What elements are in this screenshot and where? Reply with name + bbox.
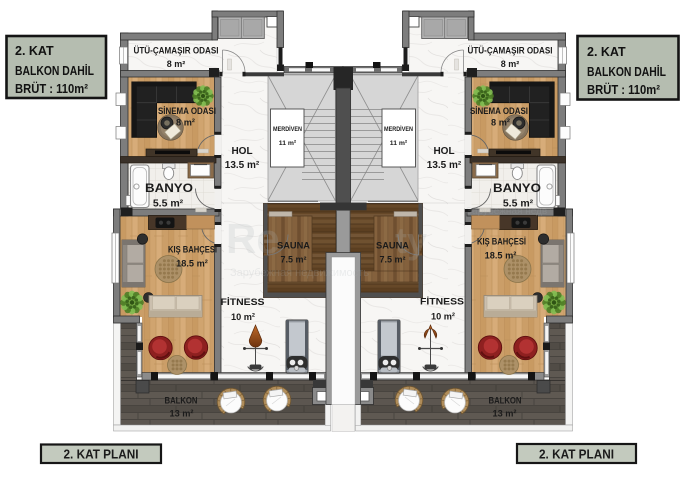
svg-text:13 m²: 13 m² [492, 409, 516, 419]
svg-text:HOL: HOL [433, 146, 454, 157]
svg-text:5.5 m²: 5.5 m² [503, 198, 534, 210]
svg-text:7.5 m²: 7.5 m² [379, 255, 405, 265]
svg-text:2. KAT PLANI: 2. KAT PLANI [539, 448, 614, 462]
svg-text:18.5 m²: 18.5 m² [176, 259, 208, 269]
svg-text:2. KAT: 2. KAT [15, 44, 54, 58]
svg-text:KIŞ BAHÇESİ: KIŞ BAHÇESİ [477, 237, 526, 247]
svg-text:Зарубежная недвижимость: Зарубежная недвижимость [230, 267, 369, 279]
svg-text:10 m²: 10 m² [231, 312, 255, 322]
svg-text:2. KAT: 2. KAT [587, 45, 626, 59]
svg-text:ÜTÜ-ÇAMAŞIR ODASI: ÜTÜ-ÇAMAŞIR ODASI [134, 46, 219, 56]
svg-text:2. KAT PLANI: 2. KAT PLANI [64, 448, 139, 462]
svg-text:ÜTÜ-ÇAMAŞIR ODASI: ÜTÜ-ÇAMAŞIR ODASI [468, 46, 553, 56]
svg-text:MERDİVEN: MERDİVEN [273, 125, 302, 133]
svg-text:8 m²: 8 m² [501, 59, 520, 69]
svg-text:5.5 m²: 5.5 m² [153, 198, 184, 210]
svg-text:BALKON DAHİL: BALKON DAHİL [587, 64, 666, 79]
svg-text:BANYO: BANYO [145, 183, 193, 195]
svg-text:FİTNESS: FİTNESS [420, 297, 464, 307]
svg-text:8 m²: 8 m² [167, 59, 186, 69]
svg-text:FİTNESS: FİTNESS [221, 297, 265, 307]
svg-text:MERDİVEN: MERDİVEN [384, 125, 413, 133]
svg-text:13.5 m²: 13.5 m² [225, 160, 260, 171]
svg-text:11 m²: 11 m² [390, 140, 408, 147]
svg-text:13 m²: 13 m² [169, 409, 193, 419]
svg-text:11 m²: 11 m² [279, 140, 297, 147]
svg-text:SİNEMA ODASI: SİNEMA ODASI [470, 106, 528, 116]
svg-text:SAUNA: SAUNA [376, 241, 409, 252]
svg-text:Re: Re [226, 215, 280, 262]
svg-text:BRÜT : 110m²: BRÜT : 110m² [587, 82, 660, 97]
svg-text:BALKON: BALKON [165, 396, 198, 406]
svg-text:13.5 m²: 13.5 m² [427, 160, 462, 171]
svg-text:SİNEMA ODASI: SİNEMA ODASI [158, 106, 216, 116]
svg-text:BALKON DAHİL: BALKON DAHİL [15, 63, 94, 78]
svg-text:8 m²: 8 m² [176, 118, 195, 128]
svg-text:BRÜT : 110m²: BRÜT : 110m² [15, 81, 88, 96]
svg-text:KIŞ BAHÇESİ: KIŞ BAHÇESİ [168, 245, 217, 255]
svg-text:BANYO: BANYO [493, 183, 541, 195]
svg-text:HOL: HOL [231, 146, 252, 157]
svg-text:10 m²: 10 m² [431, 312, 455, 322]
svg-text:SAUNA: SAUNA [277, 241, 310, 252]
svg-text:BALKON: BALKON [489, 396, 522, 406]
svg-text:7.5 m²: 7.5 m² [280, 255, 306, 265]
svg-text:8 m²: 8 m² [491, 118, 510, 128]
svg-text:18.5 m²: 18.5 m² [485, 251, 517, 261]
